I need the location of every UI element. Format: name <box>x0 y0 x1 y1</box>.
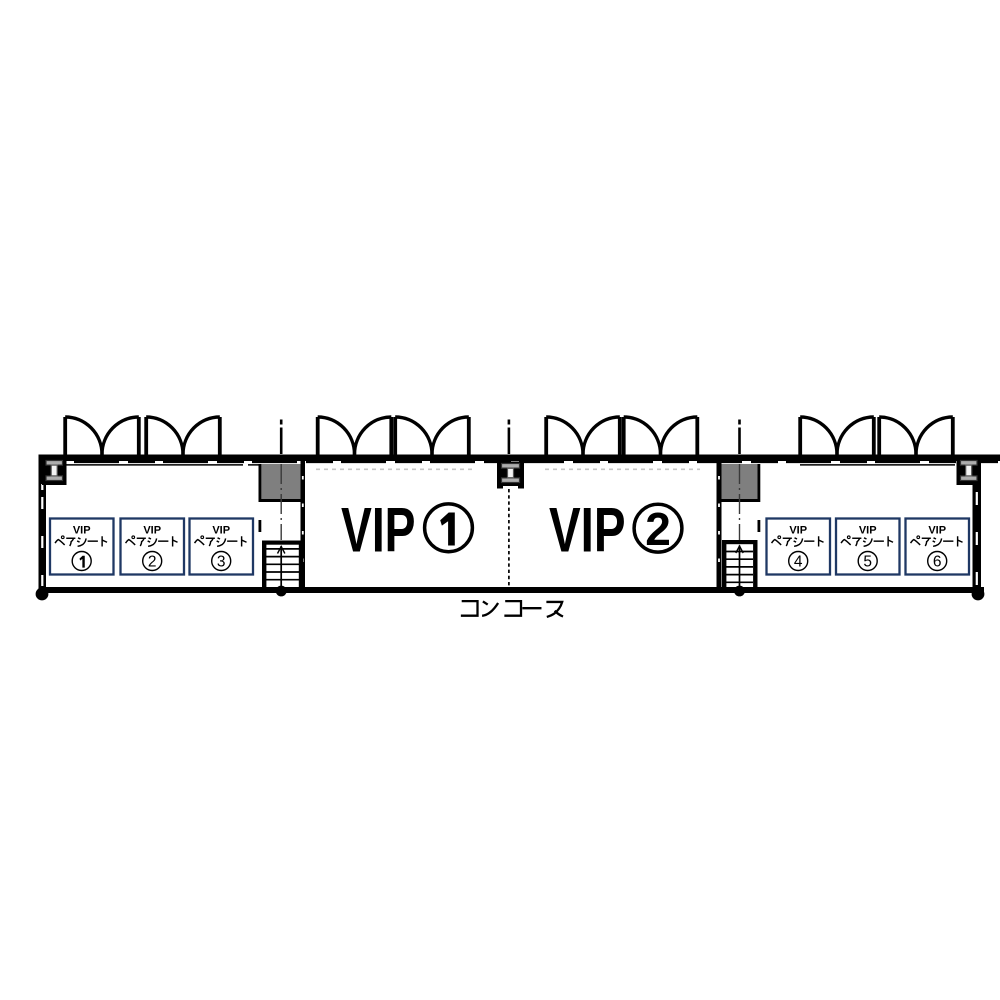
svg-text:3: 3 <box>217 553 226 570</box>
svg-text:VIP: VIP <box>73 525 91 537</box>
svg-text:6: 6 <box>933 553 942 570</box>
svg-text:4: 4 <box>794 553 803 570</box>
svg-text:2: 2 <box>645 503 671 555</box>
svg-text:VIP: VIP <box>789 525 807 537</box>
svg-text:VIP: VIP <box>212 525 230 537</box>
svg-text:VIP: VIP <box>859 525 877 537</box>
svg-text:VIP: VIP <box>549 496 626 566</box>
svg-text:VIP: VIP <box>143 525 161 537</box>
svg-text:2: 2 <box>148 553 157 570</box>
svg-text:VIP: VIP <box>928 525 946 537</box>
svg-text:5: 5 <box>863 553 872 570</box>
svg-text:VIP: VIP <box>341 496 416 566</box>
